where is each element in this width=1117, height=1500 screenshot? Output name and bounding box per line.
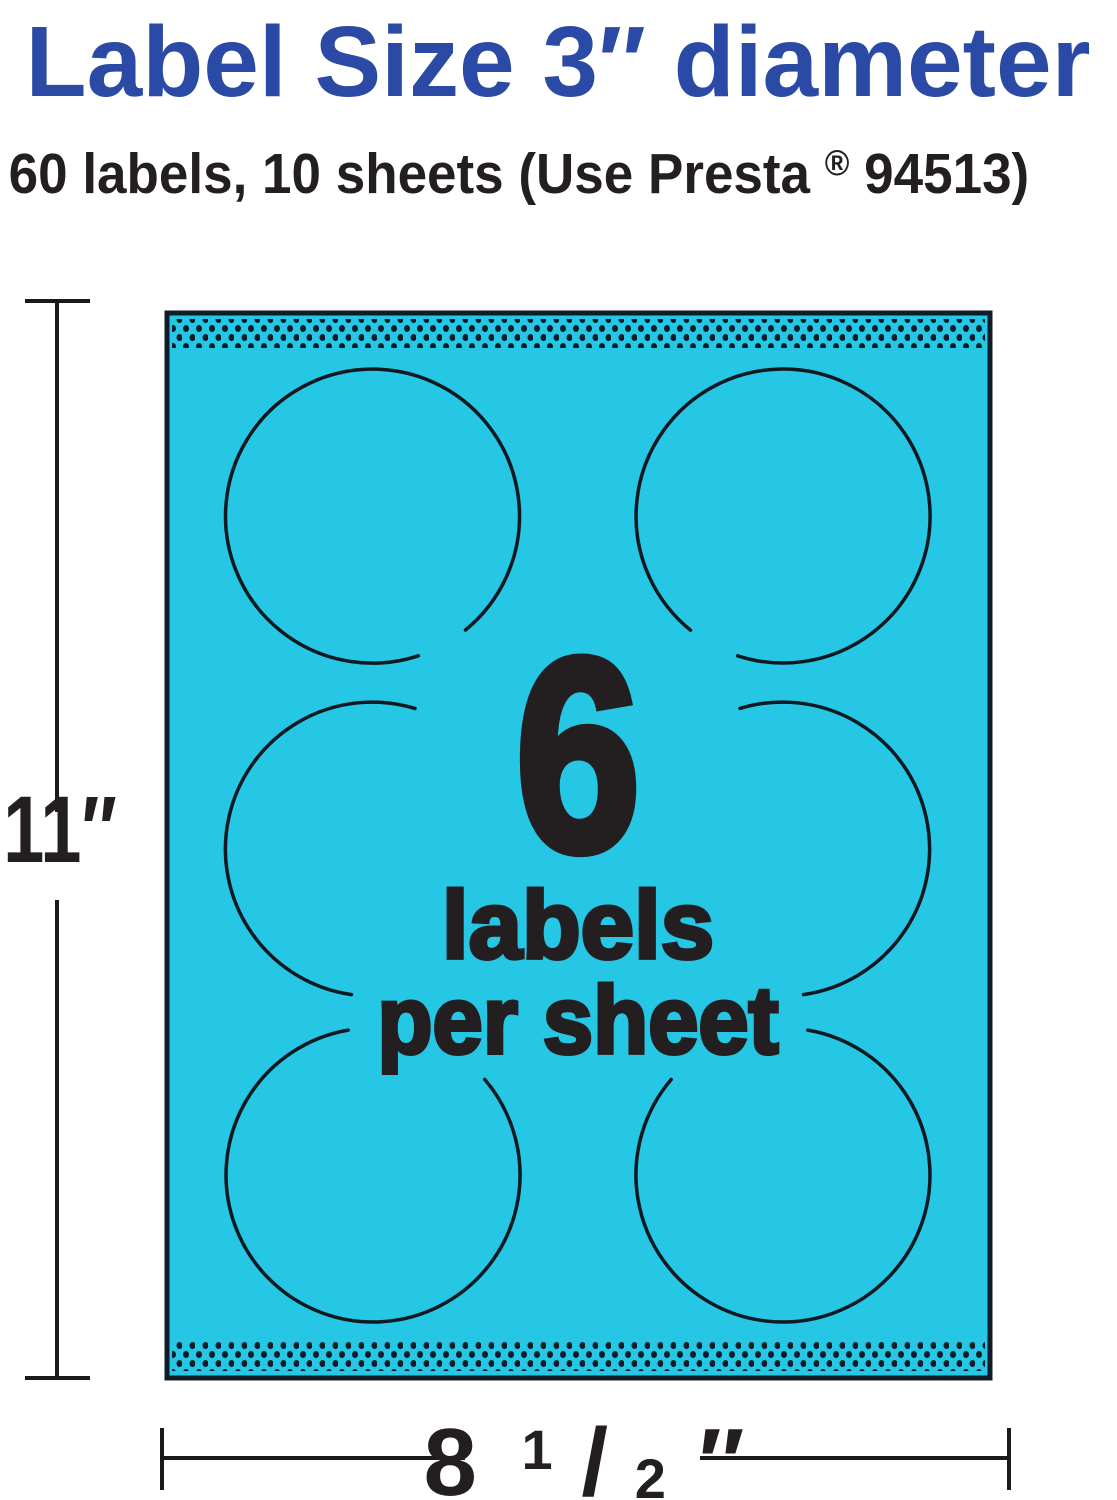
page-subtitle-post: 94513) xyxy=(864,141,1029,205)
registered-trademark-icon: ® xyxy=(825,144,850,183)
width-dim-frac-denominator: 2 xyxy=(635,1447,666,1500)
perforation-band-top xyxy=(172,319,985,348)
caption-per-sheet: per sheet xyxy=(377,966,778,1073)
labels-count: 6 xyxy=(515,602,640,909)
label-sheet-diagram: 6 labels per sheet xyxy=(167,313,990,1378)
height-dimension-label: 11″ xyxy=(3,777,117,883)
width-dim-frac-slash: / xyxy=(581,1409,608,1500)
width-dim-unit-mark: ″ xyxy=(699,1409,745,1500)
label-size-infographic: Label Size 3″ diameter 60 labels, 10 she… xyxy=(0,0,1117,1500)
width-dim-frac-numerator: 1 xyxy=(522,1418,553,1481)
caption-labels: labels xyxy=(442,872,714,979)
width-dim-whole: 8 xyxy=(423,1409,476,1500)
page-title: Label Size 3″ diameter xyxy=(26,6,1091,118)
perforation-band-bottom xyxy=(172,1342,985,1371)
infographic-canvas: Label Size 3″ diameter 60 labels, 10 she… xyxy=(0,0,1117,1500)
page-subtitle-pre: 60 labels, 10 sheets (Use Presta xyxy=(9,141,811,205)
